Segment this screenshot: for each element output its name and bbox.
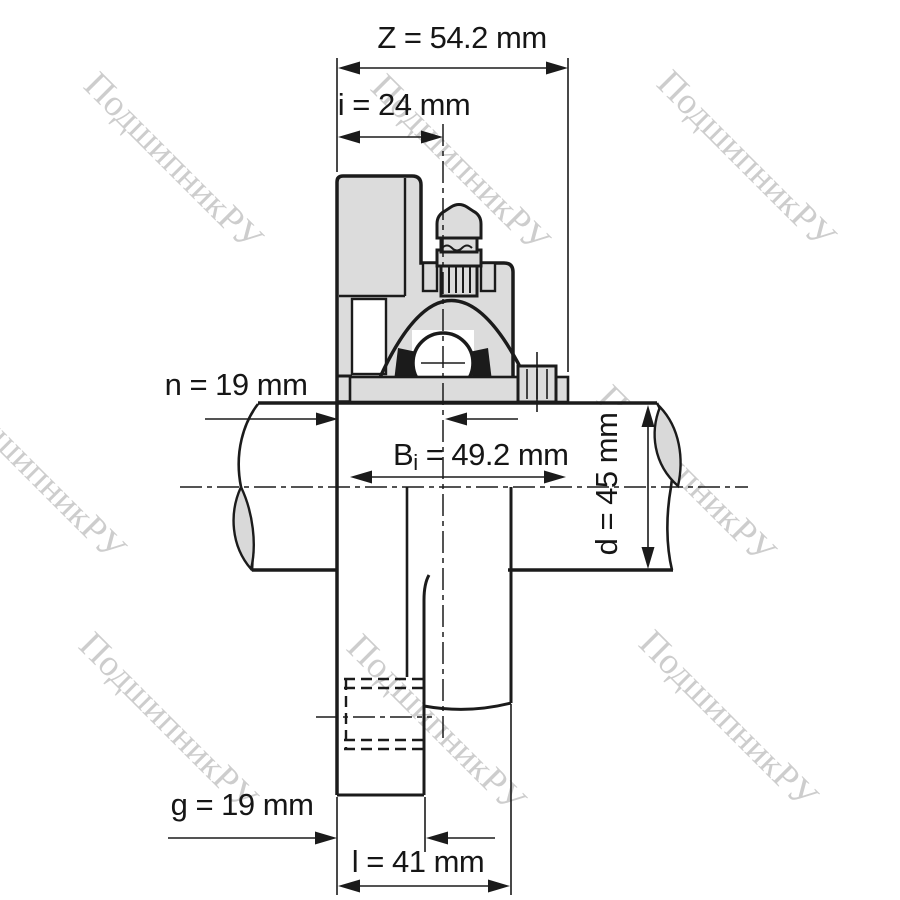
dimension-label-n: n = 19 mm	[165, 367, 308, 402]
dimension-l: l = 41 mm	[338, 844, 510, 893]
dimension-label-d: d = 45 mm	[589, 413, 624, 556]
dimension-label-i: i = 24 mm	[338, 87, 470, 122]
fitting-boss-right	[481, 263, 495, 291]
technical-drawing-bearing-unit: ПодшипникРУ ПодшипникРУ ПодшипникРУ Подш…	[0, 0, 900, 900]
fitting-boss-left	[423, 263, 437, 291]
dimension-label-g: g = 19 mm	[171, 787, 314, 822]
dimension-label-z: Z = 54.2 mm	[377, 20, 546, 55]
dimension-label-bi: Bi = 49.2 mm	[393, 437, 569, 475]
drawing-canvas: ПодшипникРУ ПодшипникРУ ПодшипникРУ Подш…	[0, 0, 900, 900]
fitting-thread-shank	[441, 263, 477, 296]
housing-cavity	[352, 299, 386, 374]
dimension-label-l: l = 41 mm	[352, 844, 484, 879]
